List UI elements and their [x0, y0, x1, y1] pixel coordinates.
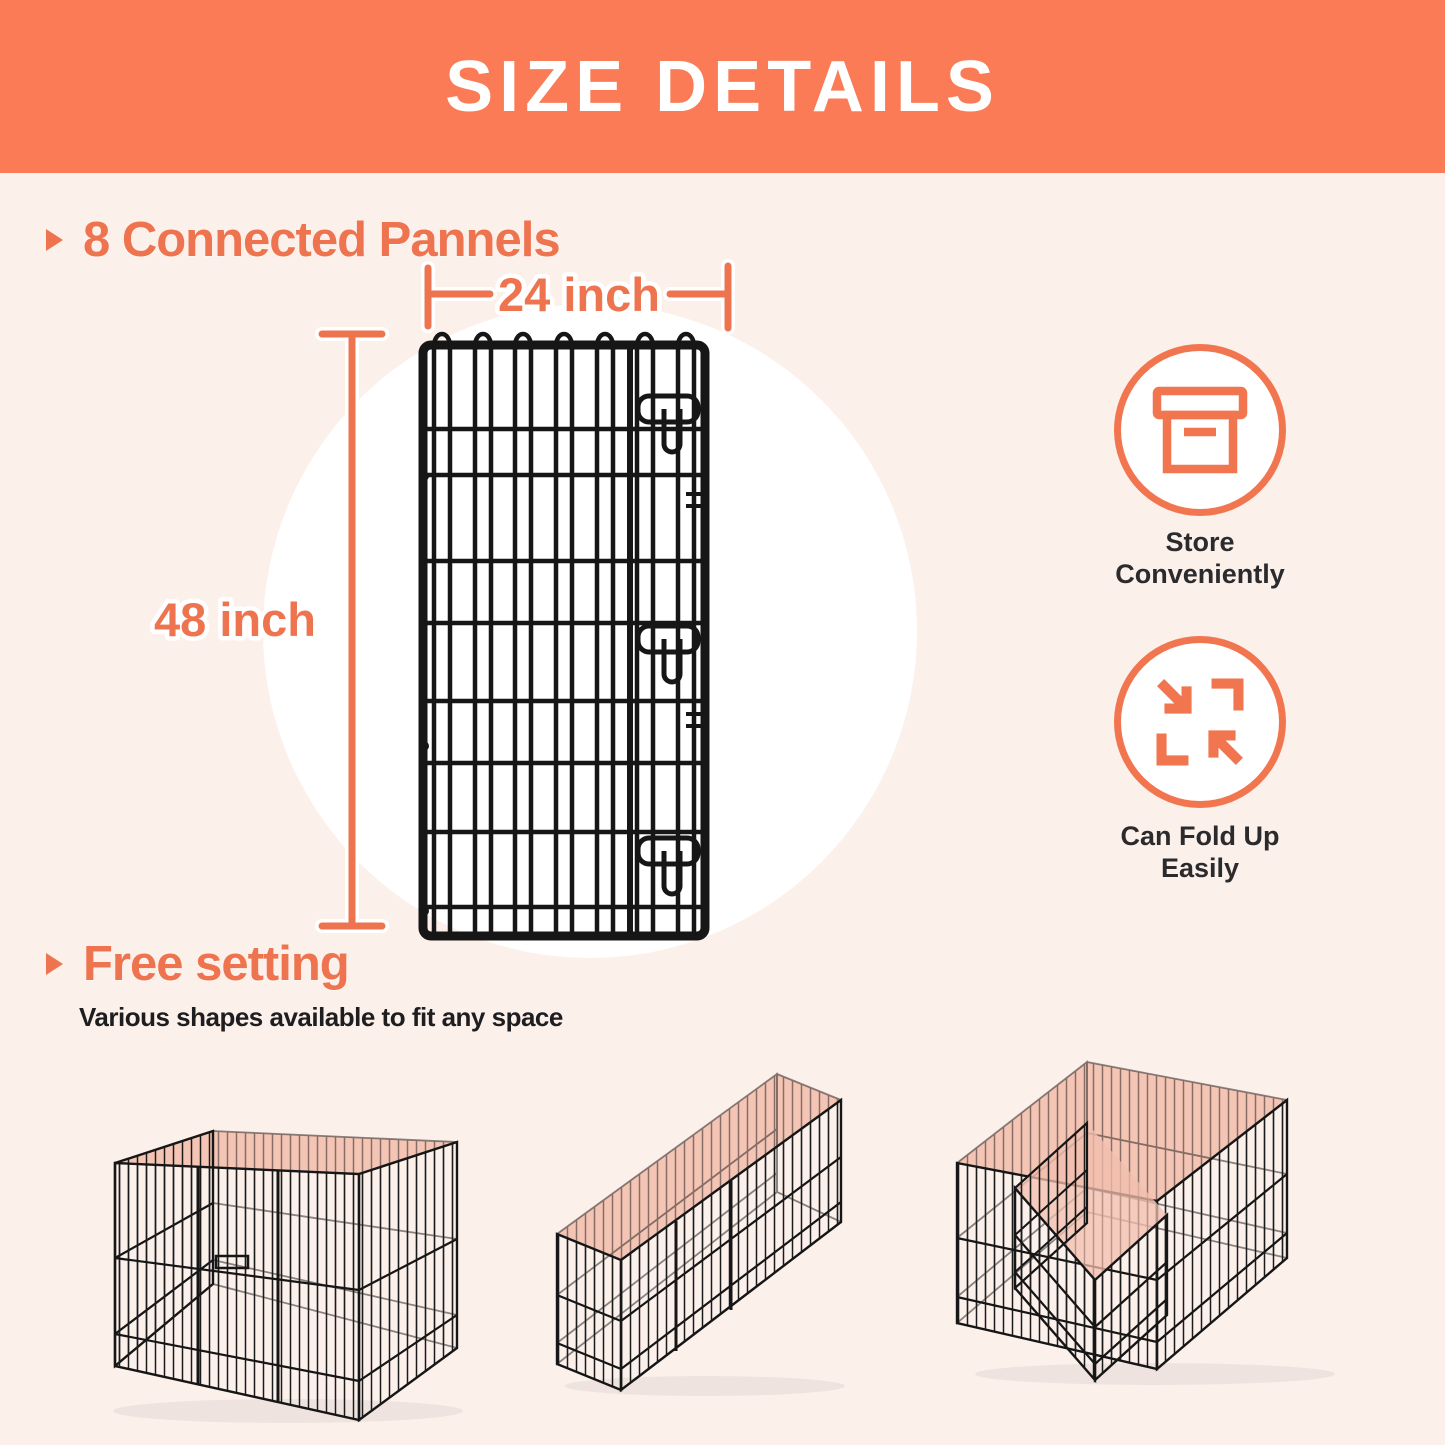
rectangle-pen-image	[545, 1056, 860, 1396]
panel-latches	[638, 396, 708, 894]
height-dimension: 48 inch	[145, 318, 395, 938]
width-dimension: 24 inch	[412, 258, 747, 336]
feature-label-store: Store Conveniently	[1040, 526, 1360, 591]
storage-box-icon	[1152, 386, 1248, 474]
fold-arrows-icon	[1150, 672, 1250, 772]
page-root: SIZE DETAILS 8 Connected Pannels 24 inch…	[0, 0, 1445, 1445]
l-shape-pen-image	[945, 1042, 1395, 1387]
feature-label-fold: Can Fold Up Easily	[1040, 820, 1360, 885]
triangle-bullet-icon	[46, 953, 63, 975]
width-dimension-label: 24 inch	[498, 268, 660, 321]
panel-vertical-wires	[434, 345, 694, 936]
section-title: Free setting	[83, 936, 349, 992]
height-dimension-label: 48 inch	[154, 593, 316, 646]
wire-panel-image	[418, 326, 710, 942]
section-heading-free-setting: Free setting	[46, 936, 349, 992]
header-banner: SIZE DETAILS	[0, 0, 1445, 173]
free-setting-subtitle: Various shapes available to fit any spac…	[79, 1002, 563, 1033]
square-pen-image	[88, 1116, 483, 1428]
feature-circle-store	[1114, 344, 1286, 516]
page-title: SIZE DETAILS	[445, 46, 1000, 128]
triangle-bullet-icon	[46, 229, 63, 251]
feature-circle-fold	[1114, 636, 1286, 808]
